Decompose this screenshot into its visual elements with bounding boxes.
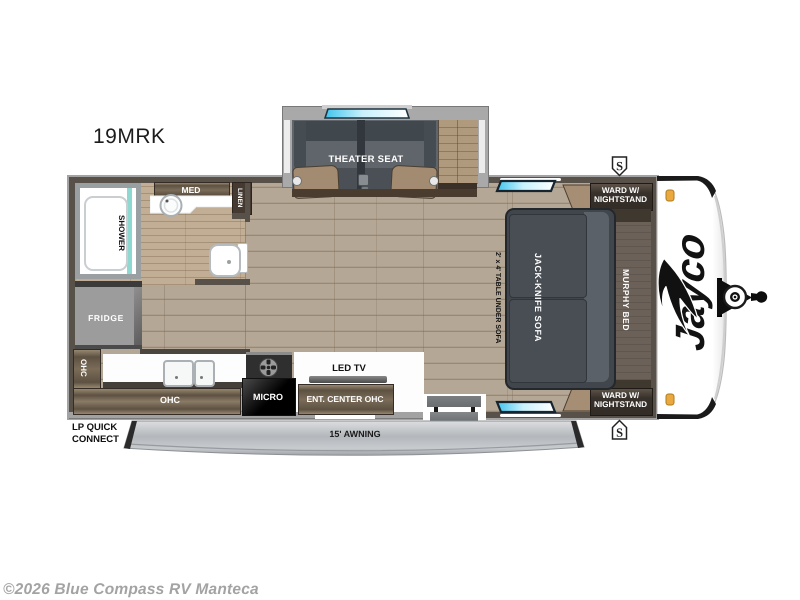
svg-text:15' AWNING: 15' AWNING bbox=[329, 429, 380, 439]
